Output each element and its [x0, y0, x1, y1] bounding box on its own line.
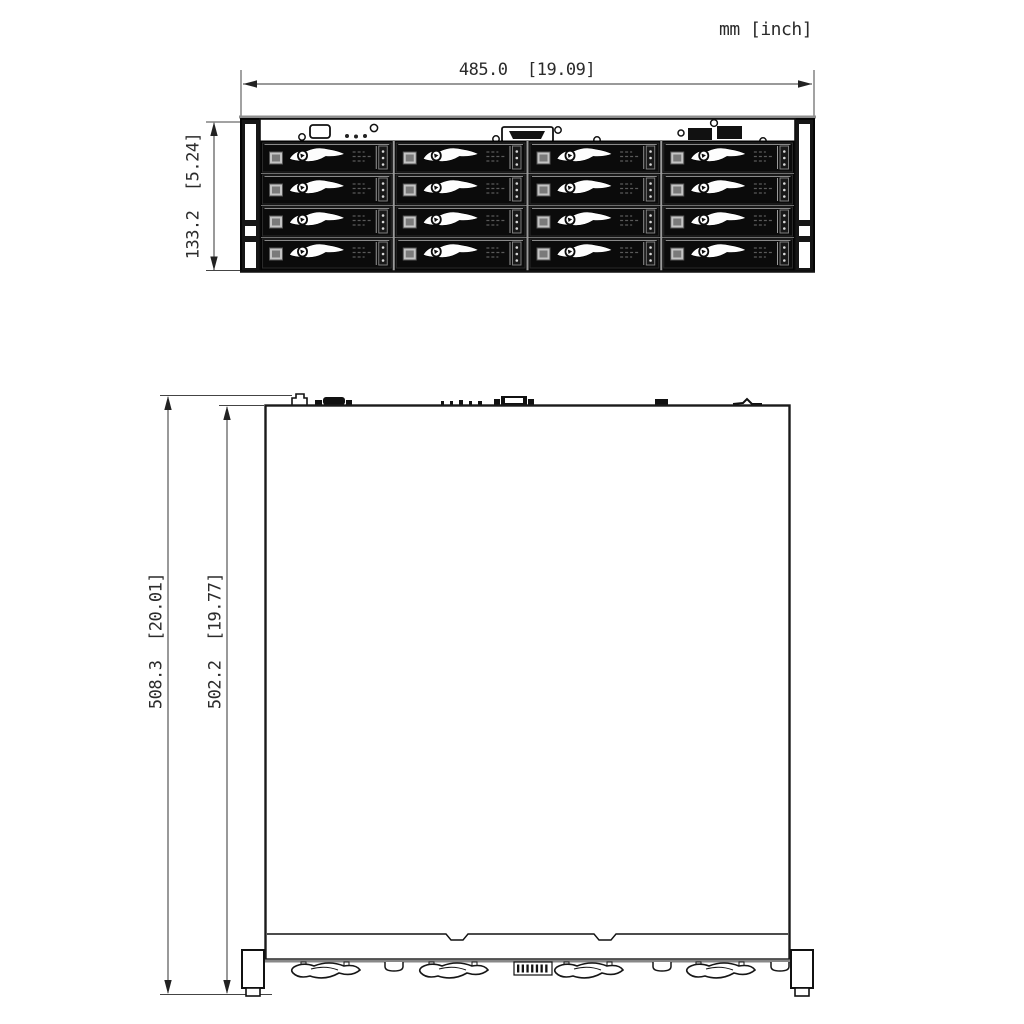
latch-dot: [382, 157, 385, 160]
drive-tray: [530, 239, 659, 268]
arrowhead-down-icon: [223, 980, 230, 994]
tray-release-button-inner: [406, 155, 414, 162]
tray-release-button-inner: [272, 251, 280, 258]
latch-dot: [783, 246, 786, 249]
latch-dot: [649, 182, 652, 185]
arrowhead-up-icon: [164, 396, 171, 410]
front-foot-right: [791, 950, 813, 996]
top-tray-handle: [292, 962, 360, 978]
latch-dot: [783, 214, 786, 217]
front-view: [239, 117, 816, 272]
ear-slot-middle: [799, 226, 810, 236]
arrowhead-left-icon: [243, 80, 257, 87]
latch-dot: [649, 157, 652, 160]
drive-tray: [263, 207, 392, 236]
top-view: [242, 394, 813, 996]
screw-icon: [370, 124, 377, 131]
latch-dot: [516, 157, 519, 160]
latch-dot: [382, 253, 385, 256]
latch-dot: [649, 214, 652, 217]
rack-ear-left: [241, 119, 260, 271]
vent-dot: [459, 400, 463, 405]
tray-release-button-inner: [540, 251, 548, 258]
vga-side-nub: [494, 399, 500, 405]
tray-release-button-inner: [673, 251, 681, 258]
tray-release-button-inner: [540, 187, 548, 194]
screw-icon: [555, 127, 561, 133]
arrowhead-down-icon: [210, 257, 217, 271]
grille-bar: [541, 965, 543, 973]
latch-dot: [382, 221, 385, 224]
drive-tray: [396, 207, 525, 236]
connector-block: [346, 400, 352, 405]
drive-tray: [664, 207, 793, 236]
latch-dot: [516, 214, 519, 217]
rack-ear-right: [795, 119, 814, 271]
tray-release-button-inner: [673, 219, 681, 226]
led-indicator-icon: [363, 134, 367, 138]
drive-tray: [530, 143, 659, 172]
latch-dot: [516, 195, 519, 198]
drive-tray: [664, 143, 793, 172]
latch-dot: [649, 189, 652, 192]
latch-dot: [516, 253, 519, 256]
tray-release-button-inner: [540, 155, 548, 162]
connector-block: [323, 397, 345, 405]
front-height-dimension: [206, 122, 241, 271]
latch-dot: [783, 150, 786, 153]
front-grille: [514, 962, 552, 975]
latch-dot: [382, 150, 385, 153]
latch-dot: [783, 163, 786, 166]
latch-dot: [382, 189, 385, 192]
top-body-outline: [266, 406, 790, 960]
latch-dot: [382, 259, 385, 262]
grille-bar: [545, 965, 547, 973]
usb-port: [688, 128, 712, 140]
screw-icon: [678, 130, 684, 136]
latch-dot: [516, 182, 519, 185]
latch-dot: [783, 157, 786, 160]
tray-release-button-inner: [272, 187, 280, 194]
dimension-drawing-page: mm [inch] 485.0 [19.09] 133.2 [5.24] 508…: [0, 0, 1024, 1024]
latch-dot: [783, 227, 786, 230]
drive-tray: [396, 175, 525, 204]
latch-dot: [516, 189, 519, 192]
latch-dot: [382, 227, 385, 230]
connector-block: [315, 400, 322, 405]
ear-slot-lower: [245, 242, 256, 268]
latch-dot: [783, 189, 786, 192]
led-indicator-icon: [354, 135, 358, 139]
latch-dot: [649, 246, 652, 249]
drive-tray: [664, 175, 793, 204]
ear-slot-lower: [799, 242, 810, 268]
front-foot-left: [242, 950, 264, 996]
front-edge-cutout: [385, 962, 403, 971]
latch-dot: [649, 259, 652, 262]
latch-dot: [649, 163, 652, 166]
connector-block: [655, 399, 668, 405]
screw-icon: [711, 120, 718, 127]
arrowhead-up-icon: [223, 406, 230, 420]
grille-bar: [526, 965, 528, 973]
vga-connector-inner: [509, 131, 545, 139]
latch-dot: [516, 227, 519, 230]
vga-connector-top-inner: [505, 398, 523, 403]
latch-dot: [649, 195, 652, 198]
latch-dot: [382, 246, 385, 249]
tray-release-button-inner: [406, 187, 414, 194]
foot-tip: [795, 988, 809, 996]
drive-bay-grid: [261, 141, 794, 271]
arrowhead-right-icon: [798, 80, 812, 87]
ear-slot-upper: [245, 124, 256, 220]
drive-tray: [530, 175, 659, 204]
screw-icon: [299, 134, 305, 140]
latch-dot: [516, 259, 519, 262]
latch-dot: [516, 150, 519, 153]
latch-dot: [382, 182, 385, 185]
drive-tray: [396, 143, 525, 172]
latch-dot: [516, 221, 519, 224]
arrowhead-down-icon: [164, 980, 171, 994]
vga-side-nub: [528, 399, 534, 405]
tray-release-button-inner: [272, 155, 280, 162]
tray-release-button-inner: [406, 251, 414, 258]
tray-release-button-inner: [673, 187, 681, 194]
drive-tray: [530, 207, 659, 236]
ear-slot-upper: [799, 124, 810, 220]
usb-port: [717, 126, 742, 139]
tray-release-button-inner: [673, 155, 681, 162]
drive-tray: [263, 239, 392, 268]
grille-bar: [522, 965, 524, 973]
front-height-dim-label: 133.2 [5.24]: [186, 133, 203, 260]
power-button: [310, 125, 330, 138]
latch-dot: [783, 182, 786, 185]
latch-dot: [516, 246, 519, 249]
drive-tray: [263, 175, 392, 204]
units-label: mm [inch]: [719, 21, 812, 39]
latch-dot: [382, 163, 385, 166]
latch-bump: [733, 399, 762, 404]
latch-dot: [649, 221, 652, 224]
rear-connector-protrusions: [292, 394, 762, 405]
drawing-layer: [0, 0, 1024, 1024]
ear-slot-middle: [245, 226, 256, 236]
latch-dot: [649, 227, 652, 230]
latch-dot: [783, 253, 786, 256]
overall-depth-dim-label: 508.3 [20.01]: [149, 573, 166, 709]
front-edge-cutout: [771, 962, 789, 971]
tray-release-button-inner: [540, 219, 548, 226]
latch-dot: [783, 195, 786, 198]
grille-bar: [531, 965, 533, 973]
latch-dot: [783, 259, 786, 262]
latch-dot: [649, 150, 652, 153]
latch-dot: [516, 163, 519, 166]
latch-dot: [382, 195, 385, 198]
drive-tray: [396, 239, 525, 268]
bracket-step: [292, 394, 307, 405]
latch-dot: [649, 253, 652, 256]
body-depth-dim-label: 502.2 [19.77]: [208, 573, 225, 709]
top-tray-handle: [555, 962, 623, 978]
front-edge-cutout: [653, 962, 671, 971]
tray-release-button-inner: [406, 219, 414, 226]
grille-bar: [536, 965, 538, 973]
grille-bar: [517, 965, 519, 973]
front-width-dim-label: 485.0 [19.09]: [459, 62, 595, 79]
latch-dot: [382, 214, 385, 217]
led-indicator-icon: [345, 134, 349, 138]
drive-tray: [263, 143, 392, 172]
latch-dot: [783, 221, 786, 224]
tray-release-button-inner: [272, 219, 280, 226]
foot-tip: [246, 988, 260, 996]
arrowhead-up-icon: [210, 122, 217, 136]
top-tray-handle: [420, 962, 488, 978]
drive-tray: [664, 239, 793, 268]
top-tray-handle: [687, 962, 755, 978]
